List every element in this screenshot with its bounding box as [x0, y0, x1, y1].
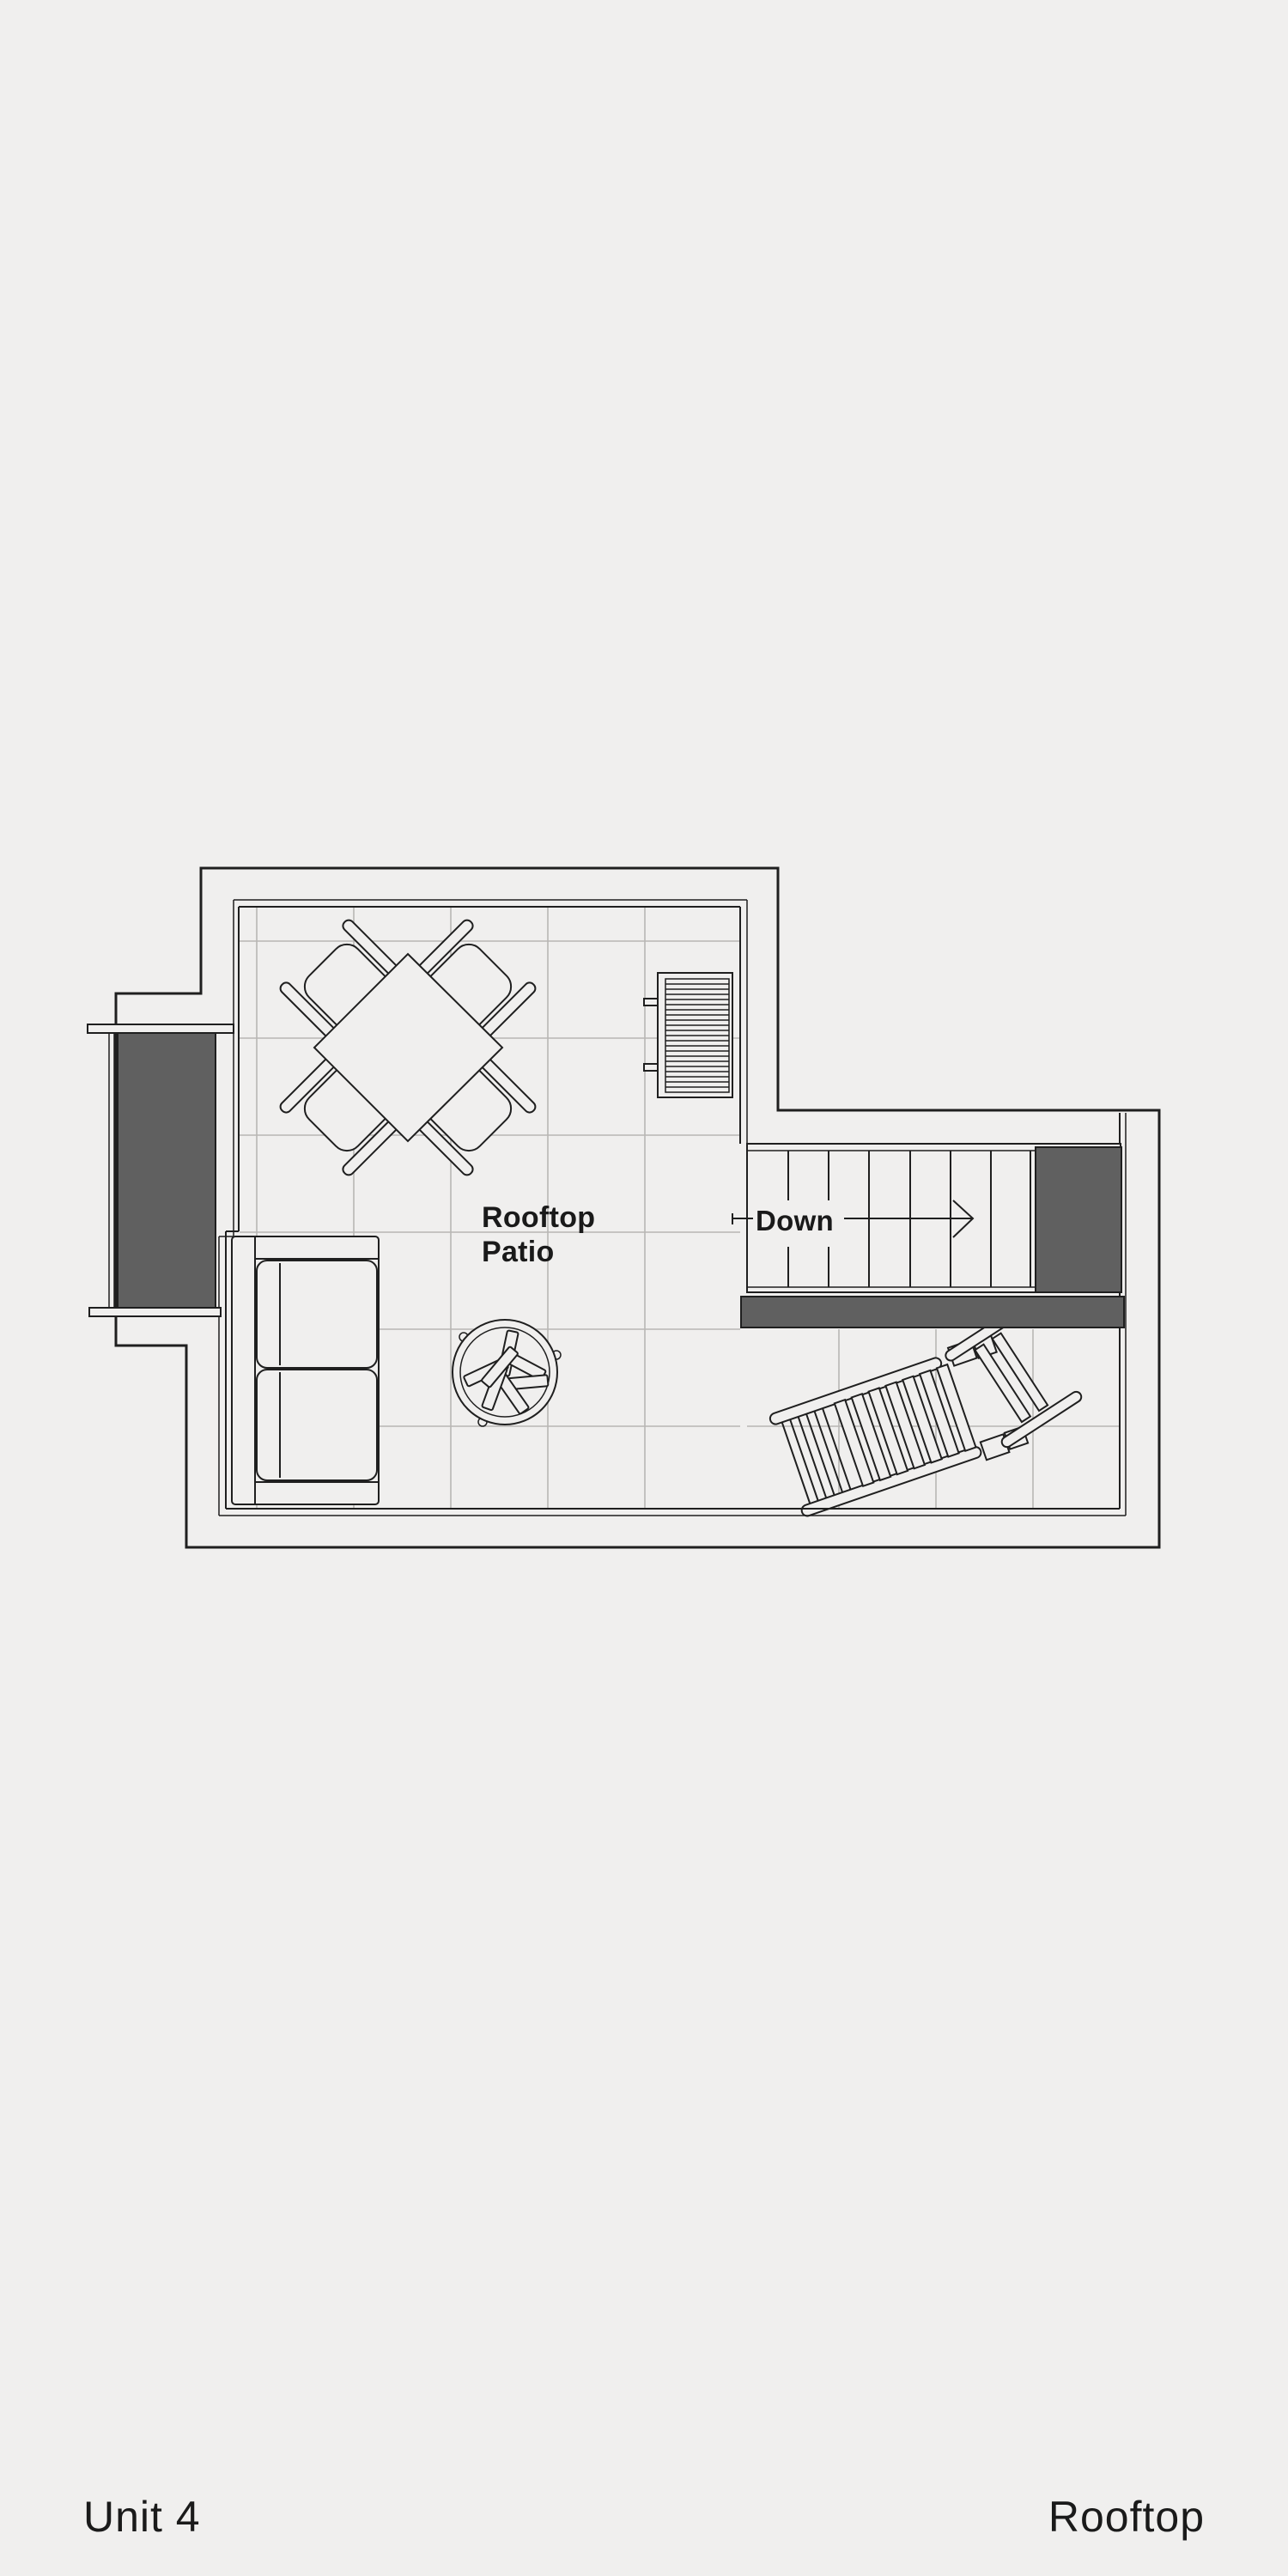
planter-icon [88, 1024, 234, 1316]
floor-plan-drawing [0, 0, 1288, 2576]
room-label-line1: Rooftop [482, 1200, 595, 1235]
unit-title: Unit 4 [83, 2492, 201, 2542]
fire-pit-icon [453, 1320, 561, 1426]
stair-landing-icon [1036, 1147, 1121, 1292]
chaise-lounge-icon [761, 1295, 1091, 1522]
floor-plan-page: Rooftop Patio Down Unit 4 Rooftop [0, 0, 1288, 2576]
room-label: Rooftop Patio [482, 1200, 595, 1269]
stair-direction-label: Down [756, 1205, 834, 1237]
stair-wall [741, 1297, 1124, 1327]
floor-level-title: Rooftop [1048, 2492, 1205, 2542]
grill-unit-icon [644, 973, 732, 1097]
room-label-line2: Patio [482, 1235, 595, 1269]
sofa-icon [232, 1236, 379, 1504]
